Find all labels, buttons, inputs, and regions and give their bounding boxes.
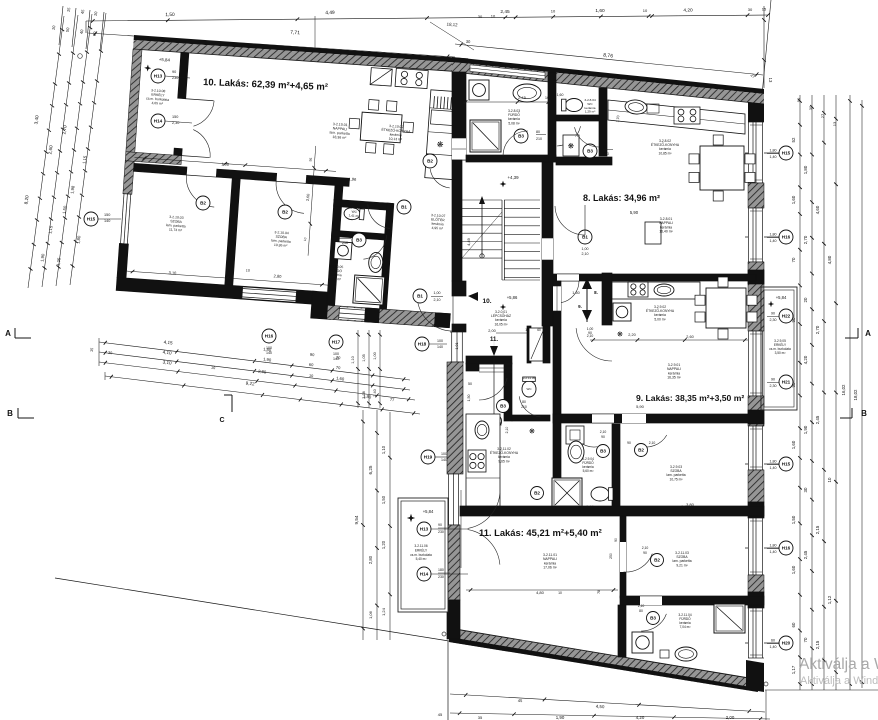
svg-text:2,15: 2,15 [815,640,820,649]
svg-text:60: 60 [537,328,541,332]
svg-text:❋: ❋ [568,142,575,151]
svg-text:100: 100 [437,339,443,343]
svg-text:1,40: 1,40 [770,239,777,243]
svg-text:1,90: 1,90 [221,161,230,167]
svg-text:2,30: 2,30 [770,318,777,322]
svg-text:2,45: 2,45 [500,9,510,15]
svg-text:1,60: 1,60 [557,93,564,97]
svg-text:1,40: 1,40 [770,155,777,159]
svg-text:4,60 m²: 4,60 m² [330,277,342,282]
svg-text:3,50 m²: 3,50 m² [775,351,786,355]
svg-text:ERKÉLY: ERKÉLY [415,547,428,552]
svg-text:2,10: 2,10 [642,546,649,550]
svg-text:210: 210 [342,241,348,245]
svg-text:1,00: 1,00 [373,352,377,359]
svg-text:B3: B3 [518,134,524,139]
svg-text:6,25: 6,25 [368,465,373,474]
svg-text:1,00: 1,00 [434,291,441,295]
svg-text:+5,86: +5,86 [507,295,518,300]
svg-text:9,54: 9,54 [354,515,359,524]
svg-text:B3: B3 [587,149,593,154]
svg-text:B2: B2 [282,210,288,215]
svg-text:90: 90 [172,70,176,74]
svg-text:B3: B3 [356,238,362,243]
svg-text:2,80: 2,80 [273,273,282,279]
svg-text:30: 30 [748,7,753,12]
svg-text:60: 60 [791,622,796,627]
svg-text:B: B [7,409,13,418]
svg-text:2,30: 2,30 [770,384,777,388]
svg-text:H16: H16 [782,235,791,240]
svg-text:16,40 m²: 16,40 m² [659,230,673,234]
svg-text:10.: 10. [482,298,491,305]
svg-text:30: 30 [478,14,483,19]
svg-text:78: 78 [597,590,601,594]
svg-text:2,70: 2,70 [815,325,820,334]
svg-text:4,50: 4,50 [596,704,605,709]
svg-text:2,10: 2,10 [600,430,607,434]
svg-text:140: 140 [437,345,443,349]
svg-text:B2: B2 [534,491,540,496]
svg-text:2,20: 2,20 [628,333,635,337]
svg-text:+5,84: +5,84 [159,57,171,63]
svg-text:1,10: 1,10 [381,445,386,454]
svg-text:1,90: 1,90 [803,425,808,434]
svg-text:80: 80 [343,234,347,238]
svg-text:2,80: 2,80 [368,555,373,564]
svg-text:2,80: 2,80 [258,369,267,375]
svg-text:1,50: 1,50 [467,395,471,402]
svg-text:H15: H15 [87,217,96,222]
svg-text:3-2.11.06: 3-2.11.06 [414,544,427,548]
svg-text:10: 10 [551,9,556,14]
svg-text:1,60: 1,60 [595,8,605,14]
svg-text:20: 20 [803,297,808,302]
svg-text:17,06 m²: 17,06 m² [543,566,557,570]
svg-text:3,80: 3,80 [686,502,695,507]
svg-text:9.: 9. [578,304,582,309]
svg-text:H14: H14 [420,572,429,577]
svg-text:1,60: 1,60 [791,440,796,449]
svg-text:10: 10 [558,591,562,595]
svg-text:1,01: 1,01 [455,343,459,350]
svg-text:1,70: 1,70 [616,115,621,122]
svg-text:H16: H16 [265,334,274,339]
svg-text:4,80: 4,80 [536,590,545,595]
svg-text:1,80: 1,80 [770,149,777,153]
svg-text:+5,84: +5,84 [423,509,434,514]
svg-text:2,70: 2,70 [803,235,808,244]
svg-text:10: 10 [827,477,832,482]
svg-text:1,96: 1,96 [348,176,357,182]
svg-text:1,90: 1,90 [263,357,272,363]
svg-text:250: 250 [609,553,613,559]
svg-text:1,40: 1,40 [770,645,777,649]
svg-text:100: 100 [441,452,447,456]
svg-text:9,21 m²: 9,21 m² [676,563,688,567]
svg-text:10: 10 [643,8,648,13]
svg-text:❋: ❋ [617,329,623,338]
svg-text:1,00: 1,00 [582,247,589,251]
svg-text:4,20: 4,20 [683,8,693,14]
svg-text:H17: H17 [332,340,341,345]
svg-text:Aktiválja a Wind: Aktiválja a Wind [800,675,878,687]
svg-text:52: 52 [791,137,796,142]
svg-text:cs.m. burkolata: cs.m. burkolata [410,553,432,557]
svg-text:15: 15 [762,7,767,12]
svg-text:B2: B2 [200,201,206,206]
svg-text:1,50: 1,50 [381,495,386,504]
svg-text:10: 10 [491,14,496,19]
svg-text:B3: B3 [500,404,506,409]
svg-text:1,90: 1,90 [556,715,565,720]
svg-text:27: 27 [820,113,825,118]
svg-text:2,10: 2,10 [638,604,645,608]
svg-text:❋: ❋ [436,140,444,149]
svg-text:230: 230 [438,575,444,579]
svg-text:90: 90 [614,538,618,542]
svg-text:10: 10 [525,328,529,332]
svg-text:7,71: 7,71 [290,30,300,37]
svg-text:95: 95 [309,157,314,161]
svg-text:1,40: 1,40 [770,466,777,470]
svg-text:230: 230 [438,530,444,534]
svg-text:8,76: 8,76 [603,53,613,60]
svg-text:1,80: 1,80 [803,165,808,174]
svg-text:1,10: 1,10 [351,356,355,363]
svg-text:50: 50 [468,382,472,386]
svg-text:13: 13 [768,78,773,83]
svg-text:1,20: 1,20 [381,540,386,549]
svg-text:70: 70 [803,637,808,642]
svg-text:8.: 8. [594,290,598,295]
svg-text:2,45: 2,45 [518,95,527,100]
svg-text:140: 140 [333,357,339,361]
svg-text:80: 80 [603,145,607,149]
svg-text:11.: 11. [490,337,498,343]
svg-text:Aktiválja a W: Aktiválja a W [799,656,878,673]
svg-text:+4,39: +4,39 [507,175,519,180]
svg-text:16,02: 16,02 [841,384,846,396]
svg-text:80: 80 [536,130,540,134]
svg-text:4,49: 4,49 [466,237,471,246]
svg-text:4,20: 4,20 [636,715,645,720]
svg-text:H20: H20 [782,641,791,646]
svg-text:60: 60 [771,639,775,643]
svg-text:❋: ❋ [529,426,535,435]
svg-text:1,50: 1,50 [165,12,175,18]
svg-text:90: 90 [588,331,592,335]
svg-text:150: 150 [104,213,110,217]
svg-text:1,80: 1,80 [770,544,777,548]
svg-text:H15: H15 [782,462,791,467]
svg-text:10: 10 [211,366,216,370]
svg-text:2,40: 2,40 [373,389,377,396]
svg-text:140: 140 [441,458,447,462]
svg-text:H19: H19 [424,455,433,460]
svg-text:4,20: 4,20 [803,355,808,364]
svg-text:1,29 m²: 1,29 m² [585,110,596,114]
svg-text:210: 210 [536,137,542,141]
svg-text:H21: H21 [782,380,791,385]
svg-text:210: 210 [521,405,527,409]
svg-text:WC: WC [527,387,533,391]
svg-text:3-2.11.05: 3-2.11.05 [523,376,536,380]
svg-text:H13: H13 [154,74,163,79]
svg-text:80: 80 [639,609,643,613]
svg-text:210: 210 [603,152,609,156]
svg-text:B2: B2 [638,448,644,453]
svg-text:1,80: 1,80 [770,460,777,464]
svg-text:C: C [219,417,224,424]
svg-text:2,00: 2,00 [488,329,495,333]
svg-text:2,38: 2,38 [362,391,366,398]
svg-text:H16: H16 [782,546,791,551]
svg-text:H22: H22 [782,314,791,319]
svg-text:1,17: 1,17 [791,665,796,674]
svg-text:B2: B2 [654,558,660,563]
svg-text:2,00: 2,00 [726,715,735,720]
svg-text:B3: B3 [600,449,606,454]
svg-text:140: 140 [266,351,272,355]
svg-text:+5,84: +5,84 [776,295,787,300]
svg-text:H13: H13 [420,527,429,532]
svg-text:10: 10 [309,374,314,378]
svg-text:18,12: 18,12 [446,22,458,28]
svg-text:11. Lakás: 45,21 m²+5,40 m²: 11. Lakás: 45,21 m²+5,40 m² [479,527,602,538]
svg-text:90: 90 [796,97,801,102]
svg-text:30: 30 [803,487,808,492]
svg-text:90: 90 [771,378,775,382]
svg-text:1,12: 1,12 [827,595,832,604]
svg-text:2,10: 2,10 [434,298,441,302]
svg-text:30: 30 [808,105,813,110]
svg-text:2,10: 2,10 [649,441,656,445]
svg-text:2,45: 2,45 [803,550,808,559]
svg-text:90: 90 [643,551,647,555]
svg-text:5,00 m²: 5,00 m² [654,317,666,321]
svg-text:100: 100 [333,352,339,356]
svg-text:4,49: 4,49 [325,10,335,16]
svg-text:B1: B1 [582,235,588,240]
svg-text:16,35 m²: 16,35 m² [667,376,681,380]
svg-text:4,60: 4,60 [815,205,820,214]
svg-text:2,45: 2,45 [815,415,820,424]
svg-text:10: 10 [246,268,250,272]
svg-text:1,50: 1,50 [572,291,579,295]
svg-text:9,65 m²: 9,65 m² [498,459,510,463]
svg-text:1,24: 1,24 [381,607,386,616]
svg-text:4,65 m²: 4,65 m² [151,101,164,106]
svg-text:80: 80 [522,400,526,404]
svg-text:140: 140 [104,219,110,223]
svg-text:1,05: 1,05 [362,354,366,361]
svg-text:70: 70 [575,134,579,138]
svg-text:8. Lakás: 34,96 m²: 8. Lakás: 34,96 m² [583,193,660,203]
svg-text:5,08 m²: 5,08 m² [508,121,520,125]
svg-text:4,95 m²: 4,95 m² [431,226,444,231]
svg-text:18,02: 18,02 [853,389,858,401]
svg-text:90: 90 [438,523,442,527]
svg-text:90: 90 [771,312,775,316]
svg-text:B1: B1 [417,294,423,299]
svg-text:5,90: 5,90 [636,404,645,409]
svg-text:70: 70 [791,257,796,262]
svg-text:1,50: 1,50 [791,515,796,524]
svg-text:13: 13 [832,121,837,126]
svg-text:1,60: 1,60 [336,376,345,382]
svg-text:H14: H14 [154,119,163,124]
svg-text:1,40: 1,40 [770,550,777,554]
svg-text:150: 150 [172,115,178,119]
svg-text:1,80: 1,80 [770,233,777,237]
svg-text:7,04 m²: 7,04 m² [680,625,691,629]
svg-text:90: 90 [601,435,605,439]
svg-text:10,75 m²: 10,75 m² [669,477,683,481]
svg-text:90: 90 [627,441,631,445]
svg-text:H18: H18 [418,342,427,347]
svg-text:H15: H15 [782,151,791,156]
svg-text:2,15: 2,15 [815,525,820,534]
svg-text:16,05 m²: 16,05 m² [494,322,508,326]
svg-text:180: 180 [438,568,444,572]
svg-text:2,60: 2,60 [686,335,693,339]
svg-text:10,85 m²: 10,85 m² [658,151,672,155]
svg-text:1,60: 1,60 [791,565,796,574]
svg-text:100: 100 [266,346,272,350]
svg-text:30: 30 [108,351,113,355]
svg-text:9. Lakás: 38,35 m²+3,50 m²: 9. Lakás: 38,35 m²+3,50 m² [636,393,744,403]
svg-text:15: 15 [90,348,94,353]
svg-text:77: 77 [390,398,395,402]
svg-text:1,60: 1,60 [791,195,796,204]
svg-text:90: 90 [499,422,503,426]
svg-text:A: A [5,329,11,338]
svg-text:1,06: 1,06 [368,610,373,619]
svg-text:1,41 m²: 1,41 m² [348,213,359,218]
svg-text:10: 10 [545,96,549,100]
svg-text:5,90: 5,90 [630,210,639,215]
svg-text:45: 45 [438,712,443,717]
svg-text:2,10: 2,10 [582,252,589,256]
svg-text:A: A [865,329,871,338]
svg-text:2,10: 2,10 [505,427,509,434]
svg-text:B2: B2 [427,159,433,164]
svg-text:B1: B1 [401,205,407,210]
svg-text:35: 35 [478,715,483,720]
svg-text:4,80: 4,80 [827,255,832,264]
svg-text:5,40 m²: 5,40 m² [416,557,427,561]
svg-text:B3: B3 [650,616,656,621]
svg-text:5,60 m²: 5,60 m² [583,469,594,473]
